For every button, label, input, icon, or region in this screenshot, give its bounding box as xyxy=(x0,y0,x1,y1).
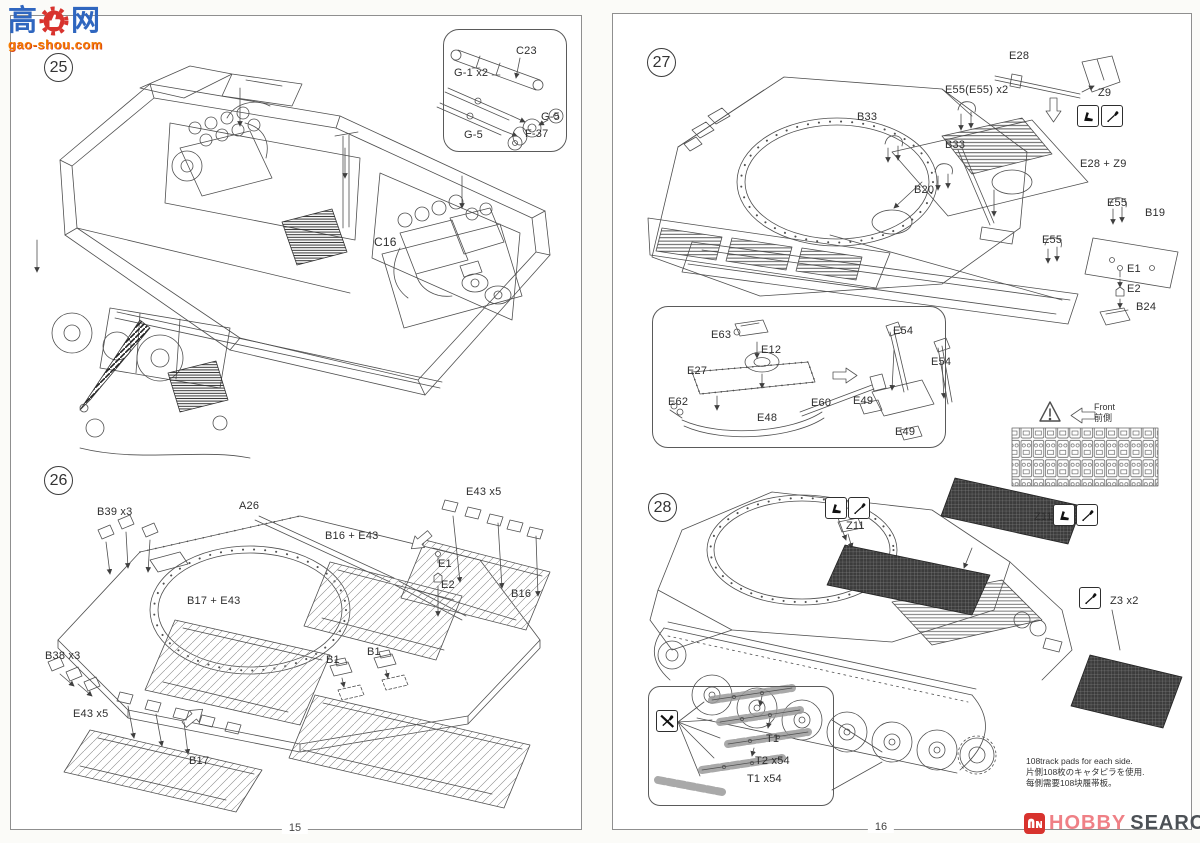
step-26-diagram xyxy=(30,490,578,820)
part-label-t1-x54: T1 x54 xyxy=(747,773,782,785)
part-label-z11-mid: Z11 xyxy=(846,520,865,532)
part-label-e55x2: E55(E55) x2 xyxy=(945,84,1008,96)
watermark: 高达网 高 网 gao-shou.com xyxy=(8,6,103,52)
step-28-track-box xyxy=(648,686,834,806)
track-pads-note: 108track pads for each side. 片側108枚のキャタピ… xyxy=(1026,756,1145,788)
part-label-e55-right: E55 xyxy=(1107,197,1127,209)
part-label-e55-mid: E55 xyxy=(1042,234,1062,246)
instruction-sheet-scan: 高达网 高 网 gao-shou.com 25 xyxy=(0,0,1200,843)
part-label-b33-right: B33 xyxy=(945,139,965,151)
part-label-b20: B20 xyxy=(914,184,934,196)
part-label-e62: E62 xyxy=(668,396,688,408)
part-label-f37: F-37 xyxy=(525,128,548,140)
part-label-e28: E28 xyxy=(1009,50,1029,62)
part-label-b16: B16 xyxy=(511,588,531,600)
part-label-g5-right: G-5 xyxy=(541,111,560,123)
brand-hobby-text: HOBBY xyxy=(1049,812,1126,835)
glue-applicator-icon xyxy=(1076,504,1098,526)
part-label-e49-left: E49 xyxy=(853,395,873,407)
part-label-e1-s27: E1 xyxy=(1127,263,1141,275)
part-label-e54-top: E54 xyxy=(893,325,913,337)
part-label-e43-top: E43 x5 xyxy=(466,486,501,498)
brand-search-text: SEARCH xyxy=(1130,812,1200,835)
part-label-e27: E27 xyxy=(687,365,707,377)
part-label-g1: G-1 x2 xyxy=(454,67,488,79)
page-number-left: 15 xyxy=(282,822,308,834)
watermark-char-2: 网 xyxy=(71,6,100,36)
part-label-e1-s26: E1 xyxy=(438,558,452,570)
part-label-z3: Z3 x2 xyxy=(1110,595,1139,607)
part-label-b1-left: B1 xyxy=(326,654,340,666)
glue-applicator-icon xyxy=(1079,587,1101,609)
watermark-url: gao-shou.com xyxy=(8,37,103,52)
glue-applicator-icon xyxy=(1101,105,1123,127)
thumbs-up-icon xyxy=(39,6,69,36)
track-pads-note-line1: 108track pads for each side. xyxy=(1026,756,1145,767)
part-label-e2-s27: E2 xyxy=(1127,283,1141,295)
part-label-e48: E48 xyxy=(757,412,777,424)
bend-part-icon xyxy=(825,497,847,519)
part-label-b1-right: B1 xyxy=(367,646,381,658)
part-label-t1: T1 xyxy=(766,733,779,745)
part-label-b19: B19 xyxy=(1145,207,1165,219)
part-label-t2-x54: T2 x54 xyxy=(755,755,790,767)
page-number-right: 16 xyxy=(868,821,894,833)
part-label-g5-bottom: G-5 xyxy=(464,129,483,141)
part-label-b24: B24 xyxy=(1136,301,1156,313)
part-label-z9: Z9 xyxy=(1098,87,1111,99)
part-label-b17: B17 xyxy=(189,755,209,767)
part-label-b33-left: B33 xyxy=(857,111,877,123)
part-label-a26: A26 xyxy=(239,500,259,512)
part-label-e63: E63 xyxy=(711,329,731,341)
part-label-z11-right: Z11 xyxy=(1034,511,1053,523)
part-label-b38: B38 x3 xyxy=(45,650,80,662)
glue-applicator-icon xyxy=(848,497,870,519)
part-label-c16: C16 xyxy=(374,236,397,248)
front-label-jp: 前側 xyxy=(1094,413,1112,423)
no-glue-icon xyxy=(656,710,678,732)
part-label-e54-right: E54 xyxy=(931,356,951,368)
part-label-e43-bottom: E43 x5 xyxy=(73,708,108,720)
part-label-e2-s26: E2 xyxy=(441,579,455,591)
part-label-b39: B39 x3 xyxy=(97,506,132,518)
part-label-e60: E60 xyxy=(811,397,831,409)
track-pads-note-line2: 片側108枚のキャタピラを使用. xyxy=(1026,767,1145,778)
part-label-b17-e43: B17 + E43 xyxy=(187,595,240,607)
track-pads-note-line3: 每側需要108块履帯板。 xyxy=(1026,778,1145,789)
watermark-char-1: 高 xyxy=(8,6,37,36)
front-label-en: Front xyxy=(1094,402,1115,412)
part-label-c23: C23 xyxy=(516,45,537,57)
hobby-search-mark-icon xyxy=(1024,813,1045,834)
part-label-e28-z9: E28 + Z9 xyxy=(1080,158,1127,170)
bend-part-icon xyxy=(1077,105,1099,127)
bend-part-icon xyxy=(1053,504,1075,526)
hobby-search-logo: HOBBY SEARCH xyxy=(1024,812,1200,835)
part-label-b16-e43: B16 + E43 xyxy=(325,530,378,542)
part-label-e49-bottom: E49 xyxy=(895,426,915,438)
part-label-e12: E12 xyxy=(761,344,781,356)
